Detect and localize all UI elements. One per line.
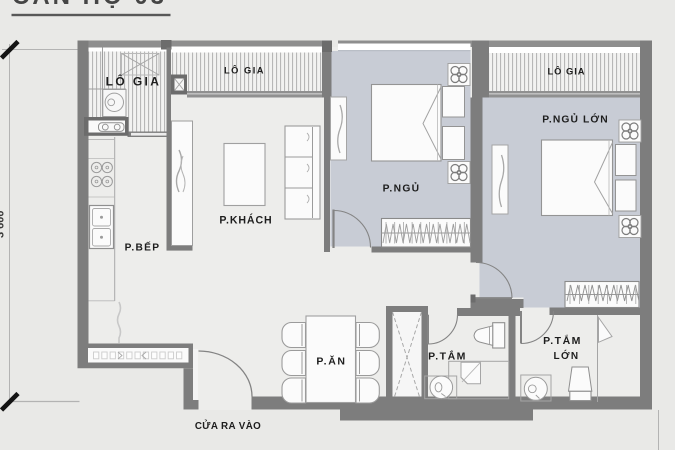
svg-text:3 600: 3 600: [0, 210, 7, 238]
svg-text:LÔ GIA: LÔ GIA: [547, 66, 585, 77]
svg-text:P.TẮM: P.TẮM: [428, 350, 467, 363]
svg-text:P.NGỦ: P.NGỦ: [383, 182, 421, 195]
svg-text:P.TẮM: P.TẮM: [543, 334, 582, 347]
svg-text:LÔ GIA: LÔ GIA: [106, 74, 162, 89]
svg-text:P.ĂN: P.ĂN: [316, 355, 346, 368]
svg-text:CỬA RA VÀO: CỬA RA VÀO: [195, 420, 261, 432]
svg-text:P.KHÁCH: P.KHÁCH: [219, 214, 272, 227]
svg-text:P.NGỦ LỚN: P.NGỦ LỚN: [542, 113, 609, 126]
svg-text:LÔ GIA: LÔ GIA: [224, 65, 265, 76]
svg-text:CĂN HỘ 03: CĂN HỘ 03: [12, 0, 167, 10]
svg-text:LỚN: LỚN: [553, 349, 579, 362]
svg-text:P.BẾP: P.BẾP: [125, 241, 161, 254]
